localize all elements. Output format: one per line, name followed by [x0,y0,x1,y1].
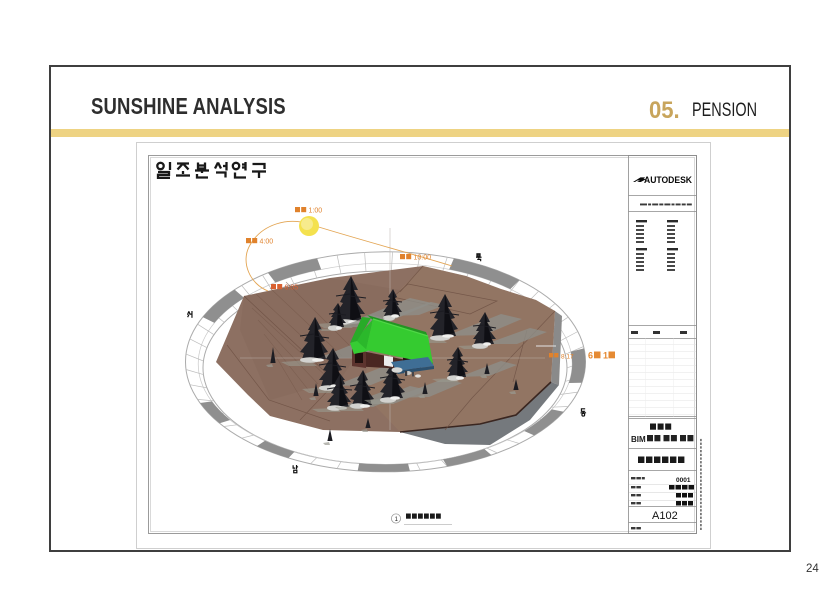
svg-text:A102: A102 [652,510,678,522]
svg-text:8:17: 8:17 [561,354,574,361]
svg-text:BIM: BIM [631,435,646,444]
svg-text:6: 6 [588,351,593,361]
svg-text:6:05: 6:05 [285,285,299,292]
svg-text:1: 1 [603,351,608,361]
svg-text:1: 1 [395,517,399,523]
svg-text:AUTODESK: AUTODESK [644,175,692,185]
svg-text:1:00: 1:00 [309,208,323,215]
svg-text:0001: 0001 [676,477,691,484]
svg-text:10:00: 10:00 [414,255,432,262]
svg-text:4:00: 4:00 [260,239,274,246]
